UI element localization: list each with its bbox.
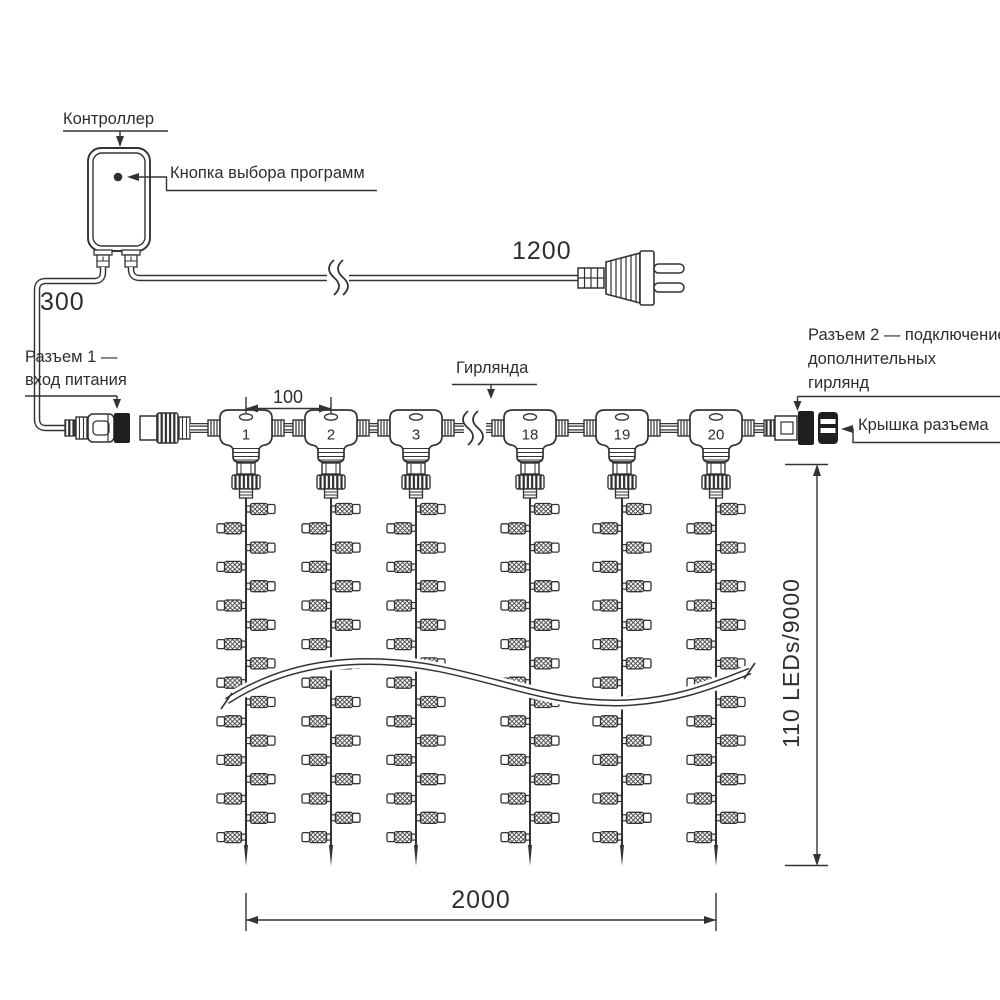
led-lamp-icon <box>417 504 446 515</box>
led-lamp-icon <box>302 793 331 804</box>
led-lamp-icon <box>332 581 361 592</box>
tee-connector-icon <box>293 410 369 498</box>
led-lamp-icon <box>593 832 622 843</box>
curtain-height-dimension: 110 LEDs/9000 <box>778 578 804 748</box>
connector-cap-label: Крышка разъема <box>858 416 989 435</box>
mains-cable-dimension: 1200 <box>512 237 572 266</box>
led-lamp-icon <box>687 561 716 572</box>
led-lamp-icon <box>417 581 446 592</box>
string-tip <box>620 845 624 866</box>
led-lamp-icon <box>717 774 746 785</box>
led-lamp-icon <box>217 793 246 804</box>
loose-cable <box>221 662 755 709</box>
connector2-icon <box>764 411 814 445</box>
led-lamp-icon <box>531 658 560 669</box>
led-lamp-icon <box>217 716 246 727</box>
led-lamp-icon <box>717 735 746 746</box>
led-lamp-icon <box>687 600 716 611</box>
controller-label: Контроллер <box>63 110 154 129</box>
diagram-line-art: 123181920 <box>0 0 1000 1000</box>
tee-number: 3 <box>412 427 420 444</box>
garland-label: Гирлянда <box>456 359 528 378</box>
tee-number: 2 <box>327 427 335 444</box>
cable-gland-icon <box>94 250 140 267</box>
led-lamp-icon <box>687 639 716 650</box>
led-lamp-icon <box>417 542 446 553</box>
led-lamp-icon <box>501 832 530 843</box>
led-lamp-icon <box>332 542 361 553</box>
led-lamp-icon <box>417 774 446 785</box>
led-lamp-icon <box>623 735 652 746</box>
led-lamp-icon <box>302 754 331 765</box>
led-lamp-icon <box>623 619 652 630</box>
string-tip <box>329 845 333 866</box>
connector1-label-line2: вход питания <box>25 371 127 390</box>
connector2-label-line2: дополнительных <box>808 350 936 369</box>
lead-length-dimension: 300 <box>40 288 85 317</box>
led-lamp-icon <box>217 754 246 765</box>
led-lamp-icon <box>332 697 361 708</box>
led-lamp-icon <box>302 677 331 688</box>
led-lamp-icon <box>217 561 246 572</box>
led-lamp-icon <box>387 793 416 804</box>
led-lamp-icon <box>623 774 652 785</box>
led-lamp-icon <box>687 754 716 765</box>
led-lamp-icon <box>247 658 276 669</box>
led-lamp-icon <box>717 812 746 823</box>
tee-number: 18 <box>522 427 539 444</box>
led-lamp-icon <box>387 600 416 611</box>
tee-spacing-dimension: 100 <box>273 387 303 408</box>
led-lamp-icon <box>302 716 331 727</box>
led-lamp-icon <box>247 581 276 592</box>
connector1-icon <box>65 413 190 443</box>
led-lamp-icon <box>687 523 716 534</box>
led-lamp-icon <box>593 600 622 611</box>
led-lamp-icon <box>302 561 331 572</box>
connector-cap-icon <box>818 412 838 444</box>
tee-connector-icon <box>678 410 754 498</box>
tee-connector-icon <box>492 410 568 498</box>
controller-icon <box>88 148 150 267</box>
tee-number: 20 <box>708 427 725 444</box>
ribbon-break-icon <box>463 411 483 445</box>
led-lamp-icon <box>593 793 622 804</box>
led-lamp-icon <box>417 735 446 746</box>
led-lamp-icon <box>531 581 560 592</box>
led-lamp-icon <box>717 619 746 630</box>
led-lamp-icon <box>417 697 446 708</box>
led-lamp-icon <box>302 523 331 534</box>
connector2-label-line1: Разъем 2 — подключение <box>808 326 1000 345</box>
tee-number: 19 <box>614 427 631 444</box>
led-lamp-icon <box>593 561 622 572</box>
led-lamp-icon <box>302 639 331 650</box>
led-lamp-icon <box>332 774 361 785</box>
string-tip <box>414 845 418 866</box>
tee-connector-icon <box>378 410 454 498</box>
led-lamp-icon <box>717 658 746 669</box>
mains-cable <box>131 260 578 295</box>
led-lamp-icon <box>623 812 652 823</box>
led-lamp-icon <box>593 639 622 650</box>
led-lamp-icon <box>247 542 276 553</box>
led-lamp-icon <box>501 600 530 611</box>
led-lamp-icon <box>501 716 530 727</box>
led-lamp-icon <box>501 754 530 765</box>
led-lamp-icon <box>687 793 716 804</box>
led-lamp-icon <box>247 735 276 746</box>
led-lamp-icon <box>332 619 361 630</box>
led-lamp-icon <box>531 619 560 630</box>
led-lamp-icon <box>593 523 622 534</box>
led-lamp-icon <box>593 754 622 765</box>
led-lamp-icon <box>531 735 560 746</box>
led-lamp-icon <box>623 504 652 515</box>
led-lamp-icon <box>501 523 530 534</box>
led-lamp-icon <box>531 774 560 785</box>
led-lamp-icon <box>717 542 746 553</box>
led-lamp-icon <box>501 639 530 650</box>
led-lamp-icon <box>387 754 416 765</box>
led-lamp-icon <box>717 581 746 592</box>
led-lamp-icon <box>247 504 276 515</box>
led-lamp-icon <box>623 542 652 553</box>
led-lamp-icon <box>687 716 716 727</box>
led-lamp-icon <box>217 600 246 611</box>
led-lamp-icon <box>387 716 416 727</box>
led-lamp-icon <box>387 561 416 572</box>
led-lamp-icon <box>593 716 622 727</box>
program-button-label: Кнопка выбора программ <box>170 164 365 183</box>
led-lamp-icon <box>247 697 276 708</box>
curtain-width-dimension: 2000 <box>451 886 511 915</box>
led-lamp-icon <box>531 542 560 553</box>
led-lamp-icon <box>387 677 416 688</box>
led-lamp-icon <box>417 619 446 630</box>
cable-break-icon <box>329 260 348 295</box>
tee-connector-icon <box>208 410 284 498</box>
string-tip <box>528 845 532 866</box>
led-lamp-icon <box>687 832 716 843</box>
led-lamp-icon <box>717 504 746 515</box>
led-lamp-icon <box>501 561 530 572</box>
led-lamp-icon <box>623 658 652 669</box>
led-lamp-icon <box>247 774 276 785</box>
led-lamp-icon <box>217 639 246 650</box>
led-lamp-icon <box>531 504 560 515</box>
led-lamp-icon <box>387 639 416 650</box>
connector1-label-line1: Разъем 1 — <box>25 348 117 367</box>
wiring-diagram: 123181920 <box>0 0 1000 1000</box>
program-button-dot <box>114 173 123 182</box>
tee-connector-icon <box>584 410 660 498</box>
led-lamp-icon <box>501 793 530 804</box>
string-tip <box>714 845 718 866</box>
led-lamp-icon <box>332 812 361 823</box>
led-lamp-icon <box>302 832 331 843</box>
led-lamp-icon <box>302 600 331 611</box>
led-lamp-icon <box>217 832 246 843</box>
led-lamp-icon <box>387 832 416 843</box>
tee-number: 1 <box>242 427 250 444</box>
led-lamp-icon <box>332 504 361 515</box>
led-lamp-icon <box>593 677 622 688</box>
led-lamp-icon <box>332 735 361 746</box>
led-lamp-icon <box>417 812 446 823</box>
led-lamp-icon <box>387 523 416 534</box>
led-lamp-icon <box>623 581 652 592</box>
led-lamp-icon <box>247 812 276 823</box>
led-lamp-icon <box>217 523 246 534</box>
led-lamp-icon <box>531 812 560 823</box>
led-lamp-icon <box>717 697 746 708</box>
led-lamp-icon <box>247 619 276 630</box>
power-plug-icon <box>578 251 684 305</box>
string-tip <box>244 845 248 866</box>
connector2-label-line3: гирлянд <box>808 374 869 393</box>
